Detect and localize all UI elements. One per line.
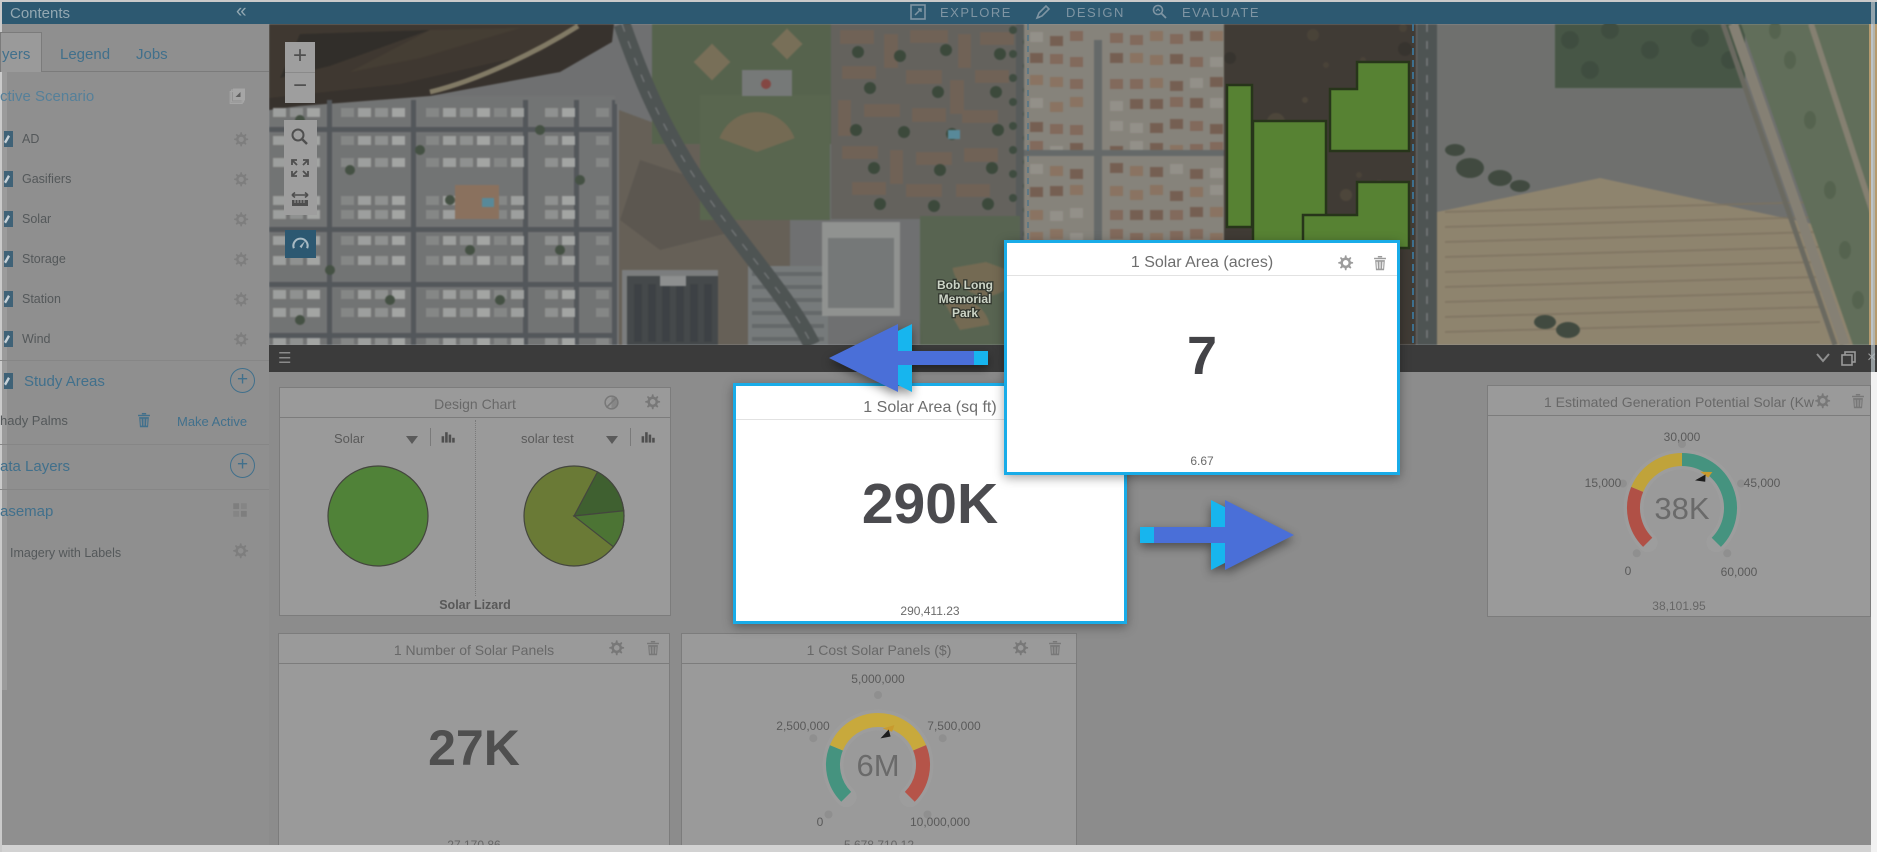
- svg-text:15,000: 15,000: [1585, 476, 1622, 490]
- svg-text:0: 0: [817, 815, 824, 829]
- svg-text:7,500,000: 7,500,000: [927, 719, 981, 733]
- svg-text:6M: 6M: [856, 748, 899, 783]
- svg-text:30,000: 30,000: [1664, 430, 1701, 444]
- svg-text:0: 0: [1625, 564, 1632, 578]
- svg-text:Bob Long: Bob Long: [937, 278, 993, 292]
- svg-text:45,000: 45,000: [1744, 476, 1781, 490]
- svg-text:10,000,000: 10,000,000: [910, 815, 970, 829]
- svg-text:Memorial: Memorial: [939, 292, 992, 306]
- svg-text:38K: 38K: [1654, 491, 1709, 526]
- svg-text:2,500,000: 2,500,000: [776, 719, 830, 733]
- svg-text:5,000,000: 5,000,000: [851, 672, 905, 686]
- svg-text:Park: Park: [952, 306, 978, 320]
- svg-text:60,000: 60,000: [1721, 565, 1758, 579]
